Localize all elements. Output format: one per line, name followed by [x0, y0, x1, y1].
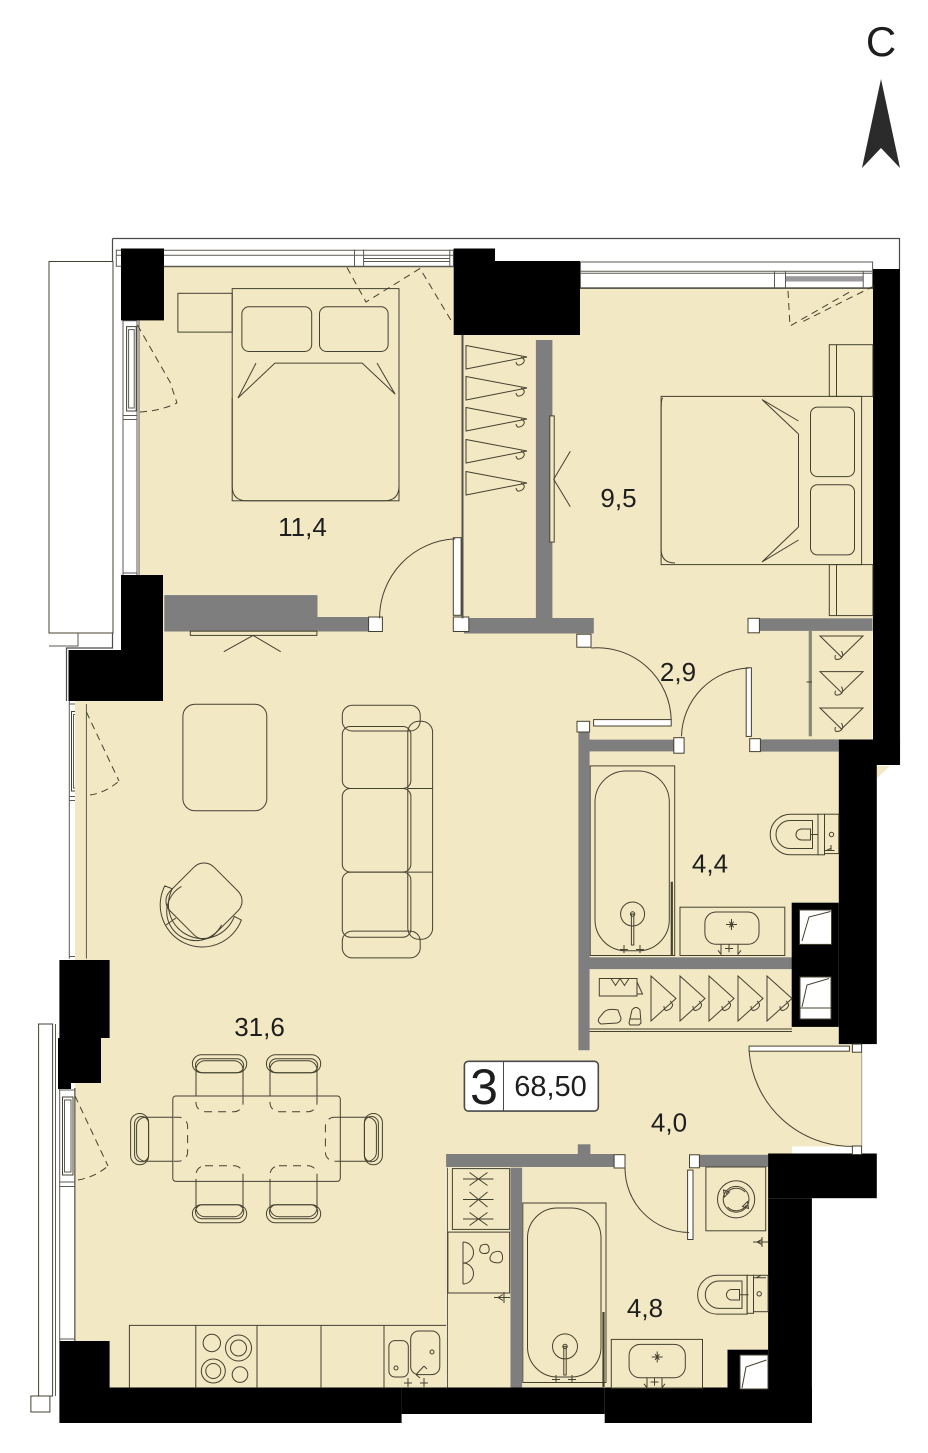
- svg-text:11,4: 11,4: [278, 512, 327, 542]
- svg-text:9,5: 9,5: [600, 483, 636, 513]
- svg-text:3: 3: [470, 1059, 498, 1115]
- svg-text:2,9: 2,9: [660, 657, 696, 687]
- svg-text:68,50: 68,50: [514, 1071, 587, 1103]
- svg-text:4,4: 4,4: [692, 849, 728, 879]
- svg-text:31,6: 31,6: [234, 1012, 285, 1042]
- svg-text:4,8: 4,8: [627, 1293, 663, 1323]
- svg-text:4,0: 4,0: [651, 1108, 687, 1138]
- svg-text:С: С: [866, 18, 896, 65]
